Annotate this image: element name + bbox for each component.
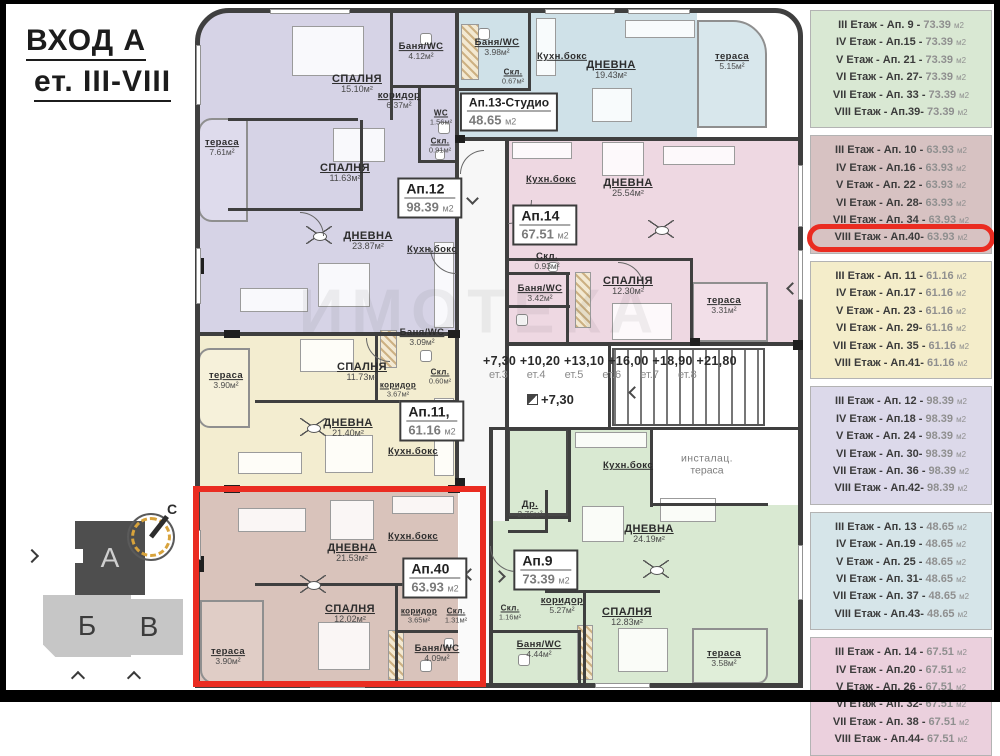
room-label: Скл.0.60м² xyxy=(429,368,451,385)
wall xyxy=(489,630,579,633)
room-label: коридор6.37м² xyxy=(378,91,421,111)
apartment-badge: Ап.1298.39 м2 xyxy=(397,178,462,219)
room-label: тераса3.90м² xyxy=(209,371,243,391)
room-label: СПАЛНЯ15.10м² xyxy=(332,73,382,95)
elevation-single: +7,30 xyxy=(527,392,574,407)
window xyxy=(196,248,201,304)
legend-row: V Етаж - Ап. 23 - 61.16 м2 xyxy=(814,303,988,320)
ceiling-light-icon xyxy=(643,560,669,578)
legend: III Етаж - Ап. 9 - 73.39 м2IV Етаж - Ап.… xyxy=(810,10,992,756)
bath-fixture-icon xyxy=(420,350,432,362)
apartment-badge: Ап.973.39 м2 xyxy=(513,550,578,591)
room-label: Скл.0.93м² xyxy=(534,252,559,272)
apartment-badge: Ап.1467.51 м2 xyxy=(512,205,577,246)
legend-row: III Етаж - Ап. 14 - 67.51 м2 xyxy=(814,644,988,661)
column xyxy=(455,478,465,486)
legend-row: IV Етаж - Ап.17 - 61.16 м2 xyxy=(814,285,988,302)
site-plan: А Б В С xyxy=(25,505,193,693)
room-label: коридор3.67м² xyxy=(380,381,416,398)
frame-right xyxy=(994,0,1000,702)
furniture-item xyxy=(582,506,624,542)
room-label: WC1.56м² xyxy=(430,109,452,126)
room-label: Скл.0.91м² xyxy=(429,137,451,154)
window xyxy=(270,9,350,14)
room-label: ДНЕВНА19.43м² xyxy=(586,59,635,81)
furniture-item xyxy=(660,498,716,522)
room-label: ДНЕВНА24.19м² xyxy=(624,523,673,545)
column xyxy=(690,338,700,346)
legend-row: VII Етаж - Ап. 38 - 67.51 м2 xyxy=(814,714,988,731)
compass-needle xyxy=(149,515,169,539)
room-label: тераса3.58м² xyxy=(707,649,741,669)
window xyxy=(196,45,201,105)
room-label: Кухн.бокс xyxy=(526,175,576,185)
furniture-item xyxy=(625,20,695,38)
window xyxy=(628,9,690,14)
ceiling-light-icon xyxy=(300,418,326,436)
legend-box-3: III Етаж - Ап. 11 - 61.16 м2IV Етаж - Ап… xyxy=(810,261,992,379)
room-label: Кухн.бокс xyxy=(537,52,587,62)
entrance-arrow-icon xyxy=(25,549,39,563)
survey-marker-icon xyxy=(527,394,538,405)
furniture-item xyxy=(618,628,668,672)
legend-box-5: III Етаж - Ап. 13 - 48.65 м2IV Етаж - Ап… xyxy=(810,512,992,630)
furniture-item xyxy=(238,452,302,474)
furniture-item xyxy=(575,432,647,448)
elevation-floors: ет.3 ет.4 ет.5 ет.6 ет.7 ет.8 xyxy=(489,369,737,381)
room-label: Баня/WC3.98м² xyxy=(475,38,520,58)
wall xyxy=(650,503,768,506)
room-label: СПАЛНЯ12.83м² xyxy=(602,606,652,628)
legend-row: V Етаж - Ап. 21 - 73.39 м2 xyxy=(814,52,988,69)
compass-icon xyxy=(127,513,175,561)
room-label: Баня/WC4.12м² xyxy=(399,42,444,62)
furniture-item xyxy=(592,88,632,122)
entrance-title-line2: ет. III-VIII xyxy=(34,65,171,102)
apartment-badge: Ап.11,61.16 м2 xyxy=(399,401,464,442)
frame-left xyxy=(0,0,6,702)
entrance-arrow-icon xyxy=(127,671,141,685)
legend-row: IV Етаж - Ап.15 - 73.39 м2 xyxy=(814,34,988,51)
legend-row: VIII Етаж - Ап.41- 61.16 м2 xyxy=(814,355,988,372)
legend-row: VII Етаж - Ап. 33 - 73.39 м2 xyxy=(814,87,988,104)
wall xyxy=(528,12,531,90)
frame-top xyxy=(0,0,1000,4)
legend-box-1: III Етаж - Ап. 9 - 73.39 м2IV Етаж - Ап.… xyxy=(810,10,992,128)
room-label: Скл.0.67м² xyxy=(502,68,524,85)
legend-row: IV Етаж - Ап.16 - 63.93 м2 xyxy=(814,160,988,177)
frame-bottom xyxy=(0,690,1000,702)
furniture-item xyxy=(325,435,373,473)
furniture-item xyxy=(536,18,556,76)
ceiling-light-icon xyxy=(648,220,674,238)
wall xyxy=(578,630,581,686)
legend-row: III Етаж - Ап. 13 - 48.65 м2 xyxy=(814,519,988,536)
wall xyxy=(489,427,803,430)
entrance-title: ВХОД А ет. III-VIII xyxy=(26,24,171,102)
column xyxy=(793,340,803,350)
room-label: инсталац.тераса xyxy=(681,453,733,476)
legend-row: III Етаж - Ап. 9 - 73.39 м2 xyxy=(814,17,988,34)
column xyxy=(224,330,240,338)
legend-row: VIII Етаж - Ап.43- 48.65 м2 xyxy=(814,606,988,623)
wall xyxy=(545,490,548,532)
legend-row: VIII Етаж - Ап.39- 73.39 м2 xyxy=(814,104,988,121)
elevation-marks: +7,30 +10,20 +13,10 +16,00 +18,90 +21,80… xyxy=(483,354,737,381)
legend-row: III Етаж - Ап. 12 - 98.39 м2 xyxy=(814,393,988,410)
site-block-v: В xyxy=(115,599,183,655)
legend-box-2: III Етаж - Ап. 10 - 63.93 м2IV Етаж - Ап… xyxy=(810,135,992,253)
legend-row: IV Етаж - Ап.18 - 98.39 м2 xyxy=(814,411,988,428)
legend-row: III Етаж - Ап. 11 - 61.16 м2 xyxy=(814,268,988,285)
room-label: Баня/WC4.44м² xyxy=(517,640,562,660)
window xyxy=(595,683,650,688)
room-label: коридор5.27м² xyxy=(541,596,584,616)
room-label: Кухн.бокс xyxy=(603,461,653,471)
legend-row-highlighted: VIII Етаж - Ап.40- 63.93 м2 xyxy=(814,229,988,246)
window xyxy=(798,250,803,300)
wall xyxy=(508,272,570,275)
legend-row: VII Етаж - Ап. 36 - 98.39 м2 xyxy=(814,463,988,480)
entrance-title-line1: ВХОД А xyxy=(26,24,146,61)
room-label: тераса3.31м² xyxy=(707,296,741,316)
terrace-ap13 xyxy=(697,20,767,128)
watermark: ИМОТЕКА xyxy=(299,277,661,348)
wall xyxy=(228,118,358,121)
legend-row: III Етаж - Ап. 10 - 63.93 м2 xyxy=(814,142,988,159)
furniture-item xyxy=(663,146,735,165)
wall xyxy=(690,258,693,342)
room-label: Скл.1.16м² xyxy=(499,604,521,621)
furniture-item xyxy=(333,128,385,162)
room-label: тераса5.15м² xyxy=(715,52,749,72)
furniture-item xyxy=(292,26,364,76)
wall xyxy=(455,137,803,141)
legend-row: VI Етаж - Ап. 27- 73.39 м2 xyxy=(814,69,988,86)
legend-row: VI Етаж - Ап. 30- 98.39 м2 xyxy=(814,446,988,463)
room-label: ДНЕВНА25.54м² xyxy=(603,177,652,199)
legend-row: VIII Етаж - Ап.42- 98.39 м2 xyxy=(814,480,988,497)
wall xyxy=(583,593,586,686)
apartment-badge: Ап.13-Студио48.65 м2 xyxy=(460,93,558,132)
window xyxy=(798,545,803,600)
room-label: ДНЕВНА21.40м² xyxy=(323,417,372,439)
wall xyxy=(457,88,531,91)
legend-row: VI Етаж - Ап. 29- 61.16 м2 xyxy=(814,320,988,337)
elevation-list: +7,30 +10,20 +13,10 +16,00 +18,90 +21,80 xyxy=(483,354,737,368)
site-block-a-notch xyxy=(67,549,83,563)
entrance-arrow-icon xyxy=(71,671,85,685)
room-label: Кухн.бокс xyxy=(407,245,457,255)
window xyxy=(545,9,615,14)
furniture-item xyxy=(240,288,308,312)
legend-row: IV Етаж - Ап.19 - 48.65 м2 xyxy=(814,536,988,553)
furniture-item xyxy=(602,142,644,176)
wall xyxy=(228,208,363,211)
furniture-item xyxy=(512,142,572,159)
room-label: СПАЛНЯ11.63м² xyxy=(320,162,370,184)
room-label: Кухн.бокс xyxy=(388,447,438,457)
room-label: Др.2.76м² xyxy=(517,500,542,520)
floorplan-page: { "page": { "title_line1": "ВХОД А", "ti… xyxy=(0,0,1000,702)
highlight-rect-ap40 xyxy=(193,486,486,687)
legend-row: VIII Етаж - Ап.44- 67.51 м2 xyxy=(814,731,988,748)
legend-box-4: III Етаж - Ап. 12 - 98.39 м2IV Етаж - Ап… xyxy=(810,386,992,504)
north-label: С xyxy=(167,501,177,517)
legend-row: V Етаж - Ап. 22 - 63.93 м2 xyxy=(814,177,988,194)
wall xyxy=(390,85,457,88)
column xyxy=(455,135,465,143)
room-label: тераса7.61м² xyxy=(205,138,239,158)
wall xyxy=(508,530,548,533)
legend-row: V Етаж - Ап. 24 - 98.39 м2 xyxy=(814,428,988,445)
wall xyxy=(418,160,458,163)
legend-row: IV Етаж - Ап.20 - 67.51 м2 xyxy=(814,662,988,679)
terrace-ap12 xyxy=(198,118,248,222)
legend-row: V Етаж - Ап. 25 - 48.65 м2 xyxy=(814,554,988,571)
window xyxy=(798,165,803,227)
legend-row: VI Етаж - Ап. 31- 48.65 м2 xyxy=(814,571,988,588)
room-label: ДНЕВНА23.87м² xyxy=(343,230,392,252)
legend-row: VII Етаж - Ап. 35 - 61.16 м2 xyxy=(814,338,988,355)
legend-row: VII Етаж - Ап. 37 - 48.65 м2 xyxy=(814,588,988,605)
wall xyxy=(568,427,571,522)
legend-row: VI Етаж - Ап. 28- 63.93 м2 xyxy=(814,195,988,212)
